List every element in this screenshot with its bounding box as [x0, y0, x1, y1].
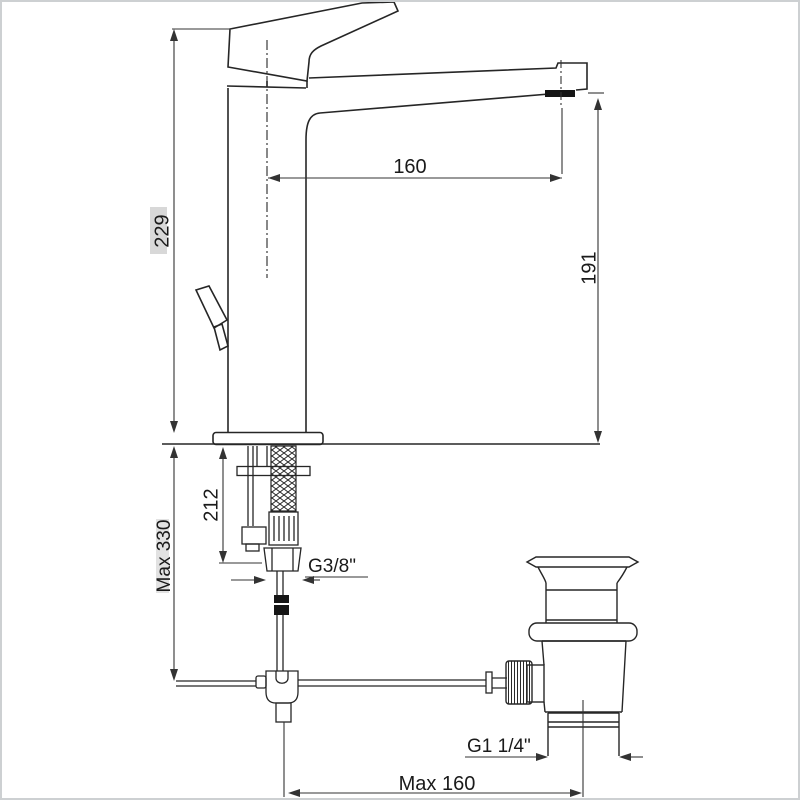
arrow-212-top — [219, 447, 227, 459]
side-lever — [196, 286, 227, 328]
rod-stub — [492, 678, 507, 688]
arrow-max330-top — [170, 446, 178, 458]
threaded-shank — [257, 446, 267, 466]
waste-flange — [529, 623, 637, 641]
waste-lower-body — [542, 641, 626, 712]
tube-nut — [242, 527, 266, 544]
lever-rod-right — [298, 680, 486, 686]
supply-nut — [264, 548, 301, 571]
arrow-g38-left — [254, 576, 266, 584]
dim-label-underdeck-length: 212 — [200, 488, 222, 521]
clevis-pin — [256, 676, 266, 688]
arrow-g114-left — [536, 753, 548, 761]
waste-upper-body — [546, 583, 617, 623]
plug-cap — [527, 557, 638, 567]
aerator — [545, 90, 575, 97]
technical-drawing-canvas: 229 Max 330 212 160 191 G3/8" G1 1/4" Ma… — [0, 0, 800, 800]
arrow-229-top — [170, 29, 178, 41]
dim-label-spout-reach: 160 — [393, 156, 426, 178]
arrow-160-left — [268, 174, 280, 182]
knurled-nut — [506, 661, 532, 704]
arrow-160-right — [550, 174, 562, 182]
popup-waste-assembly — [506, 557, 638, 756]
spout-outline — [306, 63, 587, 432]
underdeck-assembly — [176, 446, 507, 722]
arrow-212-bottom — [219, 551, 227, 563]
rod-collar — [486, 672, 492, 693]
arrow-191-top — [594, 98, 602, 110]
arrow-max330-bottom — [170, 669, 178, 681]
arrow-max160-right — [570, 789, 582, 797]
dim-label-total-height: 229 — [151, 214, 173, 247]
plug-neck — [538, 567, 627, 583]
popup-rod-tube — [248, 446, 253, 526]
dim-label-waste-connection: G1 1/4" — [467, 736, 531, 757]
arrow-191-bottom — [594, 431, 602, 443]
dim-label-max-installation-depth: Max 330 — [154, 520, 175, 593]
arrow-max160-left — [288, 789, 300, 797]
clevis-tail — [276, 703, 291, 722]
dimension-labels: 229 Max 330 212 160 191 G3/8" G1 1/4" Ma… — [151, 156, 600, 795]
dim-label-max-rod-distance: Max 160 — [399, 773, 476, 795]
braided-hose — [271, 446, 296, 511]
hose-connector-ribs — [274, 516, 294, 541]
base-plate — [213, 433, 323, 445]
faucet-above-deck — [162, 2, 600, 445]
popup-rod-upper — [277, 571, 283, 595]
lever-rod-left — [176, 681, 256, 686]
handle-lever — [228, 2, 398, 81]
body-top-edge — [227, 86, 306, 88]
tube-nut-stem — [246, 544, 259, 551]
arrow-229-bottom — [170, 421, 178, 433]
clevis-joint — [266, 671, 298, 703]
popup-rod-lower — [277, 615, 283, 671]
faucet-dimension-diagram: 229 Max 330 212 160 191 G3/8" G1 1/4" Ma… — [2, 2, 798, 798]
arrow-g114-right — [619, 753, 631, 761]
dim-label-outlet-height: 191 — [578, 251, 600, 284]
dim-label-supply-connection: G3/8" — [308, 556, 356, 577]
dimension-lines — [172, 29, 643, 797]
side-lever-stem — [214, 324, 228, 350]
rod-coupling-bottom — [274, 605, 289, 615]
rod-coupling-top — [274, 595, 289, 603]
